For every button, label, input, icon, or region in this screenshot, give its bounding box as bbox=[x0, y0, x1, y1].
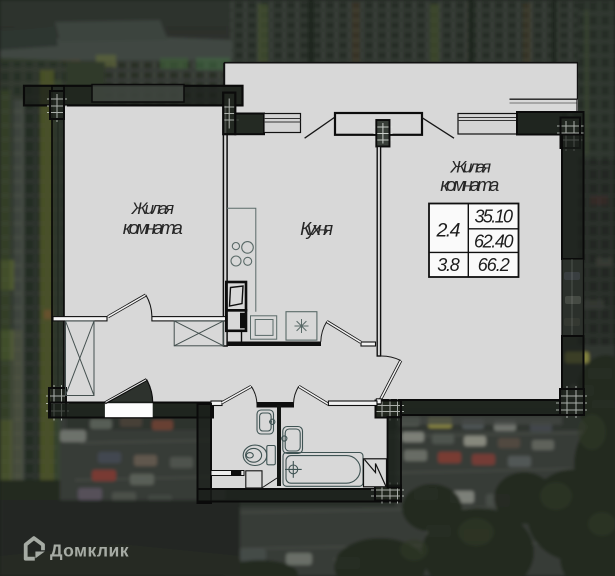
svg-text:Жилая: Жилая bbox=[131, 199, 175, 218]
svg-text:3.8: 3.8 bbox=[437, 255, 460, 275]
svg-text:62.40: 62.40 bbox=[474, 232, 514, 252]
svg-text:66.2: 66.2 bbox=[478, 255, 510, 275]
svg-text:комната: комната bbox=[440, 174, 499, 195]
svg-text:комната: комната bbox=[123, 217, 183, 238]
svg-text:35.10: 35.10 bbox=[475, 207, 514, 227]
svg-text:Домклик: Домклик bbox=[50, 540, 129, 560]
svg-text:Кухня: Кухня bbox=[300, 218, 333, 239]
svg-text:2.4: 2.4 bbox=[436, 220, 461, 242]
